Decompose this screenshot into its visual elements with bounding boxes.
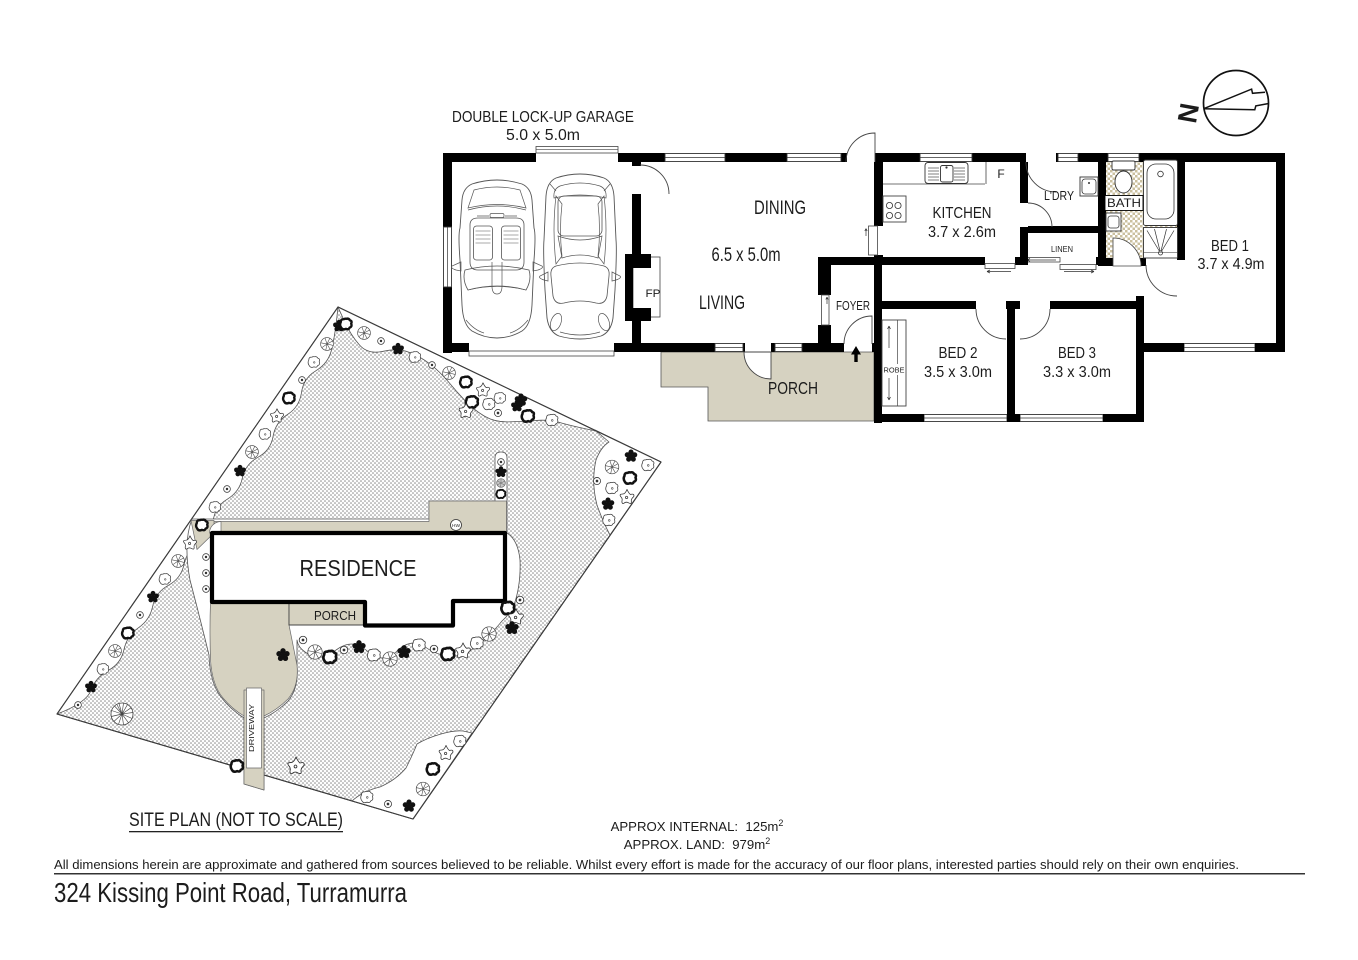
svg-text:BED 3: BED 3 (1058, 345, 1096, 362)
svg-text:3.7 x 4.9m: 3.7 x 4.9m (1198, 256, 1265, 273)
svg-text:PORCH: PORCH (314, 609, 356, 623)
svg-text:KITCHEN: KITCHEN (933, 205, 992, 222)
svg-text:BED 2: BED 2 (939, 345, 978, 362)
svg-text:LIVING: LIVING (699, 292, 745, 314)
svg-text:3.5 x 3.0m: 3.5 x 3.0m (924, 364, 992, 381)
svg-text:FP: FP (646, 288, 661, 300)
svg-text:DRIVEWAY: DRIVEWAY (247, 704, 256, 752)
svg-text:DOUBLE LOCK-UP GARAGE: DOUBLE LOCK-UP GARAGE (452, 109, 634, 126)
svg-text:LINEN: LINEN (1051, 245, 1073, 254)
svg-text:324 Kissing Point Road, Turram: 324 Kissing Point Road, Turramurra (54, 877, 408, 908)
svg-text:BATH: BATH (1107, 196, 1141, 210)
svg-text:3.3 x 3.0m: 3.3 x 3.0m (1043, 364, 1111, 381)
svg-text:5.0 x 5.0m: 5.0 x 5.0m (506, 127, 580, 144)
svg-text:6.5 x 5.0m: 6.5 x 5.0m (712, 244, 781, 266)
svg-text:F: F (997, 167, 1004, 181)
svg-text:APPROX INTERNAL: 125m2: APPROX INTERNAL: 125m2 (611, 818, 784, 834)
svg-text:All dimensions herein are appr: All dimensions herein are approximate an… (54, 857, 1239, 872)
svg-text:BED 1: BED 1 (1211, 238, 1249, 255)
svg-text:ROBE: ROBE (884, 368, 905, 375)
svg-text:L'DRY: L'DRY (1044, 189, 1075, 203)
svg-text:DINING: DINING (754, 197, 806, 219)
svg-text:RESIDENCE: RESIDENCE (300, 555, 417, 581)
svg-text:HW: HW (452, 523, 460, 529)
svg-text:SITE PLAN (NOT TO SCALE): SITE PLAN (NOT TO SCALE) (129, 809, 343, 831)
svg-text:APPROX. LAND: 979m2: APPROX. LAND: 979m2 (624, 836, 770, 852)
svg-text:PORCH: PORCH (768, 378, 818, 398)
svg-text:FOYER: FOYER (836, 299, 870, 313)
svg-text:3.7 x 2.6m: 3.7 x 2.6m (928, 224, 996, 241)
